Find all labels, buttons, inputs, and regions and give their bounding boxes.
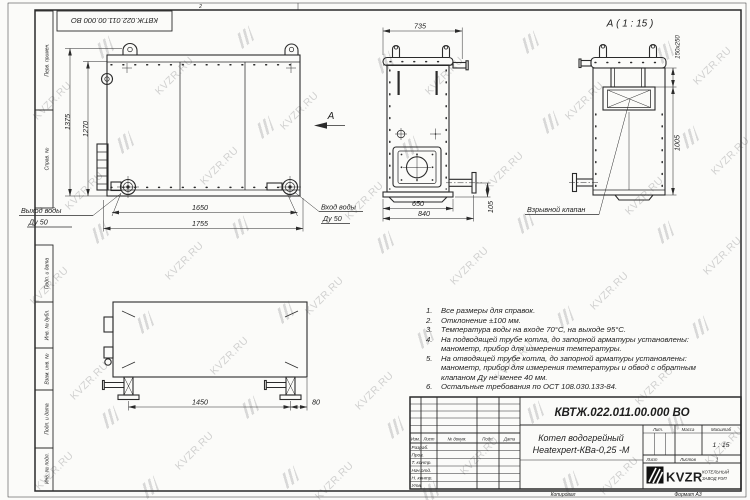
tb-row-prov: Пров. (412, 453, 424, 458)
frame-label-inv-dubl: Инв. № дубл. (45, 310, 51, 341)
format-label: Формат А3 (674, 492, 702, 498)
company-name-line2: ЗАВОД РЭП (702, 476, 728, 481)
detail-title: А ( 1 : 15 ) (606, 19, 654, 30)
tb-row-nkontr: Н. контр. (412, 475, 433, 480)
tb-header-podp: Подп. (482, 437, 493, 442)
valve-callout: Взрывной клапан (525, 99, 630, 215)
tb-header-izm: Изм. (411, 437, 420, 442)
drawing-sheet: KVZR.RUKVZR.RUKVZR.RUKVZR.RUKVZR.RUKVZR.… (0, 0, 750, 500)
bottom-dimensions: 1450 80 (129, 378, 321, 411)
tb-header-list: Лист (422, 437, 434, 442)
mount-cross-right (286, 63, 296, 73)
note-line: 5.На отводящей трубе котла, до запорной … (424, 354, 738, 364)
frame-label-podp-data-1: Подп. и дата (45, 258, 51, 290)
explosion-valve (603, 87, 655, 110)
sheet-frame: 2 Перв. примен. Справ. № Подп. и дата Ин… (8, 3, 746, 497)
note-line: 3.Температура воды на входе 70°С, на вых… (424, 325, 738, 335)
burner-flange (393, 147, 441, 187)
support-leg-right (265, 377, 302, 400)
tb-grid-scale: Масштаб (711, 427, 732, 432)
dim-1270: 1270 (81, 121, 90, 137)
front-dimensions: 1375 1270 1650 1755 (63, 49, 303, 232)
frame-label-inv-podl: Инв. № подл. (45, 453, 51, 484)
dim-650: 650 (412, 199, 424, 208)
detail-view: А ( 1 : 15 ) (525, 19, 682, 215)
view-arrow-label: А (327, 111, 335, 122)
company-logo-text: KVZR (666, 470, 703, 485)
tb-row-utv: Утв. (412, 483, 423, 488)
outlet-dn: Ду 50 (28, 218, 48, 227)
bottom-view: 1450 80 (103, 302, 321, 411)
tb-doc-number: КВТЖ.022.011.00.000 ВО (554, 407, 689, 419)
front-view: 1375 1270 1650 1755 Выход воды Ду 50 (19, 44, 363, 232)
company-name-line1: КОТЕЛЬНЫЙ (702, 470, 730, 475)
frame-label-perv-primen: Перв. примен. (45, 43, 51, 76)
tb-grid-lit: Лит. (652, 427, 663, 432)
dim-840: 840 (418, 209, 430, 218)
tb-scale-value: 1 : 15 (712, 442, 729, 449)
tb-row-tkontr: Т. контр. (412, 460, 432, 465)
tb-header-doc: № докум. (448, 437, 467, 442)
note-line: манометр, прибор для измерения температу… (424, 344, 738, 354)
frame-label-vzam-inv: Взам. инв. № (45, 353, 51, 385)
note-line: 1.Все размеры для справок. (424, 306, 738, 316)
company-logo: KVZR КОТЕЛЬНЫЙ ЗАВОД РЭП (647, 467, 730, 485)
note-line: 2.Отклонение ±100 мм. (424, 316, 738, 326)
valve-label: Взрывной клапан (527, 205, 585, 214)
dim-1005: 1005 (673, 134, 682, 151)
view-direction-arrow: А (314, 111, 345, 129)
tb-grid-sheet: Лист (645, 457, 657, 462)
copied-label: Копировал (551, 492, 576, 498)
outlet-label: Выход воды (21, 206, 62, 215)
drawing-svg: 2 Перв. примен. Справ. № Подп. и дата Ин… (0, 0, 750, 500)
note-line: манометр, прибор для измерения температу… (424, 363, 738, 373)
side-view: 735 650 840 105 (383, 22, 495, 222)
dim-1755: 1755 (192, 219, 209, 228)
dim-1375: 1375 (63, 113, 72, 130)
frame-label-sprav-no: Справ. № (45, 147, 51, 170)
note-line: 4.На подводящей трубе котла, до запорной… (424, 335, 738, 345)
detail-dimensions: 150x250 1005 (645, 35, 682, 195)
inlet-callout: Вход воды Ду 50 (295, 193, 363, 224)
tb-grid-sheets: Листов (679, 457, 696, 462)
inlet-dn: Ду 50 (322, 214, 342, 223)
dim-1450: 1450 (192, 398, 208, 407)
tb-product-line2: Heatexpert-КВа-0,25 -М (533, 445, 630, 455)
dim-105: 105 (486, 200, 495, 213)
tb-row-razrab: Разраб. (412, 445, 429, 450)
dim-80: 80 (312, 398, 320, 407)
inlet-flange (267, 176, 301, 198)
note-line: 6.Остальные требования по ОСТ 108.030.13… (424, 382, 738, 392)
title-block: Изм. Лист № докум. Подп. Дата Разраб. Пр… (410, 397, 741, 498)
tb-grid-mass: Масса (682, 427, 695, 432)
zone-marker: 2 (198, 4, 202, 10)
tb-product-line1: Котел водогрейный (538, 433, 624, 443)
dim-735: 735 (414, 22, 427, 31)
tb-sheets-value: 1 (715, 457, 718, 463)
frame-label-podp-data-2: Подп. и дата (45, 403, 51, 435)
tb-header-data: Дата (503, 437, 516, 442)
outlet-flange (111, 176, 139, 198)
support-leg-left (103, 377, 140, 400)
tb-row-nachotd: Нач.отд. (412, 468, 432, 473)
note-line: клапаном Ду не менее 40 мм. (424, 373, 738, 383)
rotated-stamp: КВТЖ.022.011.00.000 ВО (71, 16, 158, 25)
dim-150x250: 150x250 (675, 35, 682, 59)
dim-1650: 1650 (192, 203, 208, 212)
notes-list: 1.Все размеры для справок. 2.Отклонение … (424, 306, 738, 392)
inlet-label: Вход воды (321, 203, 357, 212)
